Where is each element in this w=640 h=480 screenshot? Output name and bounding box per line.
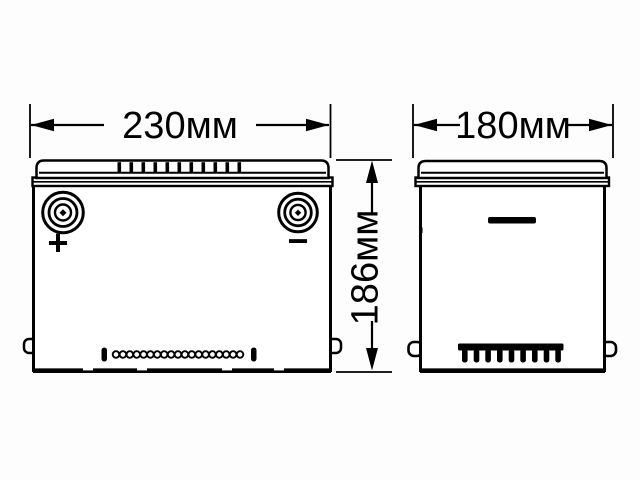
plus-sign: + (47, 222, 68, 263)
arrowhead-up-icon (366, 161, 378, 184)
battery-side-view (409, 161, 617, 371)
side-width-dimension: 180мм (413, 104, 613, 158)
front-width-dimension: 230мм (30, 104, 331, 158)
battery-case (421, 185, 605, 371)
strip-end-pill (251, 348, 257, 362)
arrowhead-left-icon (414, 119, 437, 131)
arrowhead-down-icon (366, 348, 378, 371)
top-cover (419, 161, 607, 178)
height-dimension: 186мм (336, 160, 392, 372)
strip-end-pill (102, 348, 108, 362)
bottom-ribs (458, 344, 564, 363)
battery-dimension-drawing: 230мм 180мм 186мм (0, 0, 640, 480)
arrowhead-right-icon (589, 119, 612, 131)
edge-notch (419, 228, 423, 234)
minus-sign: − (287, 220, 308, 261)
height-label: 186мм (344, 210, 386, 326)
drawing-svg: 230мм 180мм 186мм (0, 0, 640, 480)
battery-front-view: + − (24, 161, 341, 371)
arrowhead-left-icon (31, 119, 54, 131)
front-width-label: 230мм (122, 105, 238, 147)
side-width-label: 180мм (455, 105, 571, 147)
label-recess (488, 217, 536, 224)
top-cover (37, 161, 329, 179)
bead-chain (113, 351, 244, 358)
arrowhead-right-icon (306, 119, 329, 131)
